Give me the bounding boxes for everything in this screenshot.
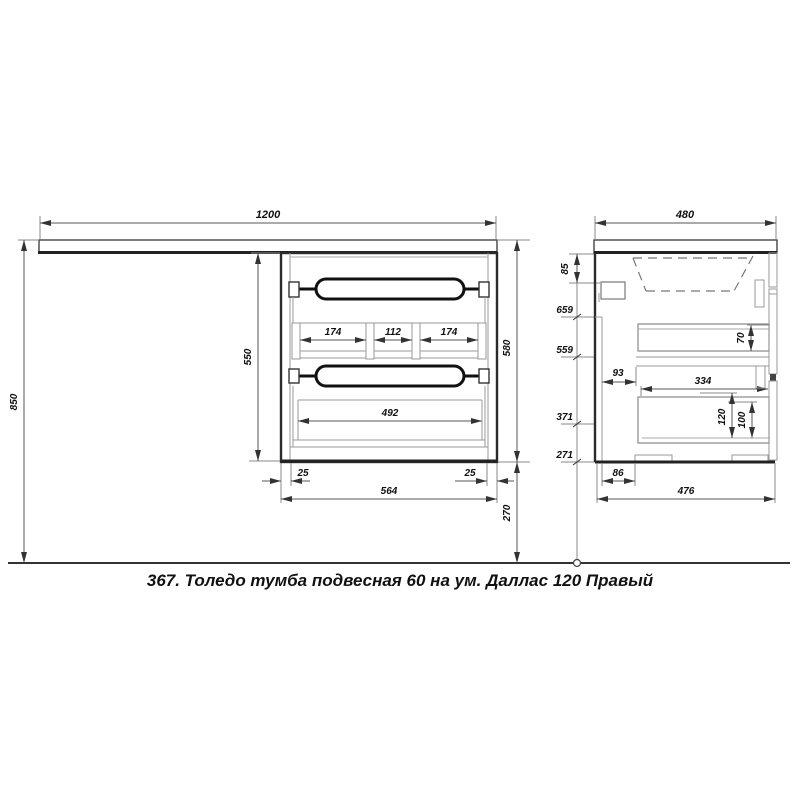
dim-492-label: 492 xyxy=(381,408,399,419)
dim-overall-height: 850 xyxy=(9,240,38,563)
drawing-page: 174 112 174 492 xyxy=(0,0,800,800)
lower-drawer-handle xyxy=(289,366,489,386)
level-659-label: 659 xyxy=(556,305,573,316)
dim-86-label: 86 xyxy=(612,468,624,479)
dim-organizer-center: 112 xyxy=(385,327,401,338)
dim-580-label: 580 xyxy=(502,339,513,356)
dim-25-left-label: 25 xyxy=(296,468,309,479)
technical-drawing: 174 112 174 492 xyxy=(0,0,800,800)
basin-outline xyxy=(633,256,753,291)
side-view: 480 85 659 559 xyxy=(555,209,777,567)
level-271-label: 271 xyxy=(555,450,573,461)
dim-countertop-depth: 480 xyxy=(595,209,776,239)
dim-cabinet-height: 580 270 xyxy=(498,240,530,563)
side-upper-drawer: 70 xyxy=(638,324,770,351)
dim-564-label: 564 xyxy=(381,486,398,497)
dim-carcass-height: 550 xyxy=(243,253,280,461)
dim-270-label: 270 xyxy=(502,504,513,522)
dim-120-label: 120 xyxy=(717,408,728,425)
dim-1200-label: 1200 xyxy=(256,209,281,221)
dim-93-label: 93 xyxy=(612,368,624,379)
dim-850-label: 850 xyxy=(9,393,20,410)
dim-480-label: 480 xyxy=(675,209,695,221)
front-countertop xyxy=(38,240,497,253)
dim-organizer-right: 174 xyxy=(441,327,458,338)
dim-countertop-width: 1200 xyxy=(40,209,496,239)
dim-organizer-left: 174 xyxy=(325,327,342,338)
level-559-label: 559 xyxy=(556,345,573,356)
dim-85-label: 85 xyxy=(560,263,571,275)
front-joint xyxy=(770,374,776,381)
side-lower-drawer: 120 100 xyxy=(638,393,769,443)
dim-550-label: 550 xyxy=(243,348,254,365)
dim-bottom-depths: 86 476 xyxy=(597,463,775,503)
handle-pill xyxy=(316,279,464,299)
handle-pill xyxy=(316,366,464,386)
dim-back-gap: 93 xyxy=(602,367,636,386)
datum-circle xyxy=(574,560,581,567)
level-371-label: 371 xyxy=(556,412,573,423)
dim-100-label: 100 xyxy=(737,411,748,428)
front-view: 174 112 174 492 xyxy=(8,209,790,563)
dim-70-label: 70 xyxy=(736,332,747,344)
dim-476-label: 476 xyxy=(677,486,695,497)
dim-bottom-widths: 25 25 564 xyxy=(262,463,514,503)
drain-siphon xyxy=(599,282,625,302)
drawing-caption: 367. Толедо тумба подвесная 60 на ум. Да… xyxy=(0,571,800,591)
dim-25-right-label: 25 xyxy=(463,468,476,479)
drawer-rails xyxy=(636,357,769,366)
dim-334-label: 334 xyxy=(695,376,712,387)
level-datum: 659 559 371 271 xyxy=(555,283,595,567)
upper-drawer-handle xyxy=(289,279,489,299)
